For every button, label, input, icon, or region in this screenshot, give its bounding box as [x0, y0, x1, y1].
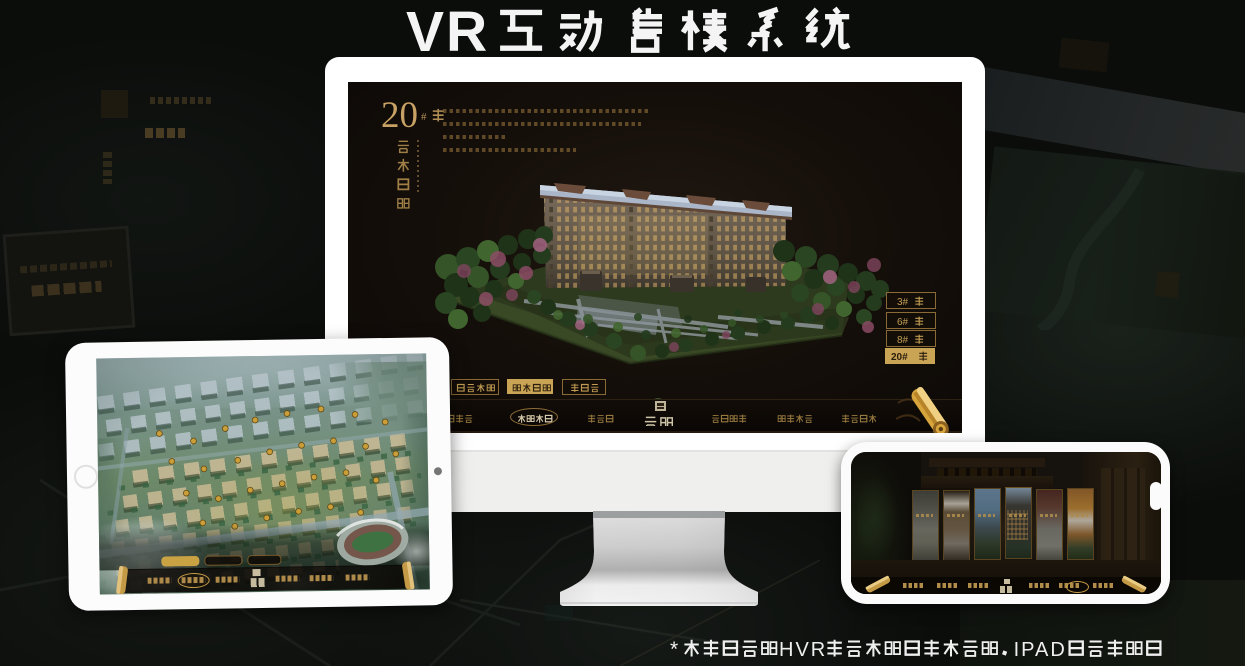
svg-text:6#: 6#: [897, 317, 909, 327]
svg-text:8#: 8#: [897, 335, 909, 345]
svg-text:20#: 20#: [891, 352, 908, 362]
svg-text:3#: 3#: [897, 297, 909, 307]
svg-text:*: *: [670, 638, 678, 661]
svg-text:HVR: HVR: [779, 639, 827, 661]
svg-text:VR: VR: [406, 6, 489, 58]
svg-text:IPAD: IPAD: [1014, 639, 1067, 661]
svg-text:#: #: [421, 111, 427, 123]
